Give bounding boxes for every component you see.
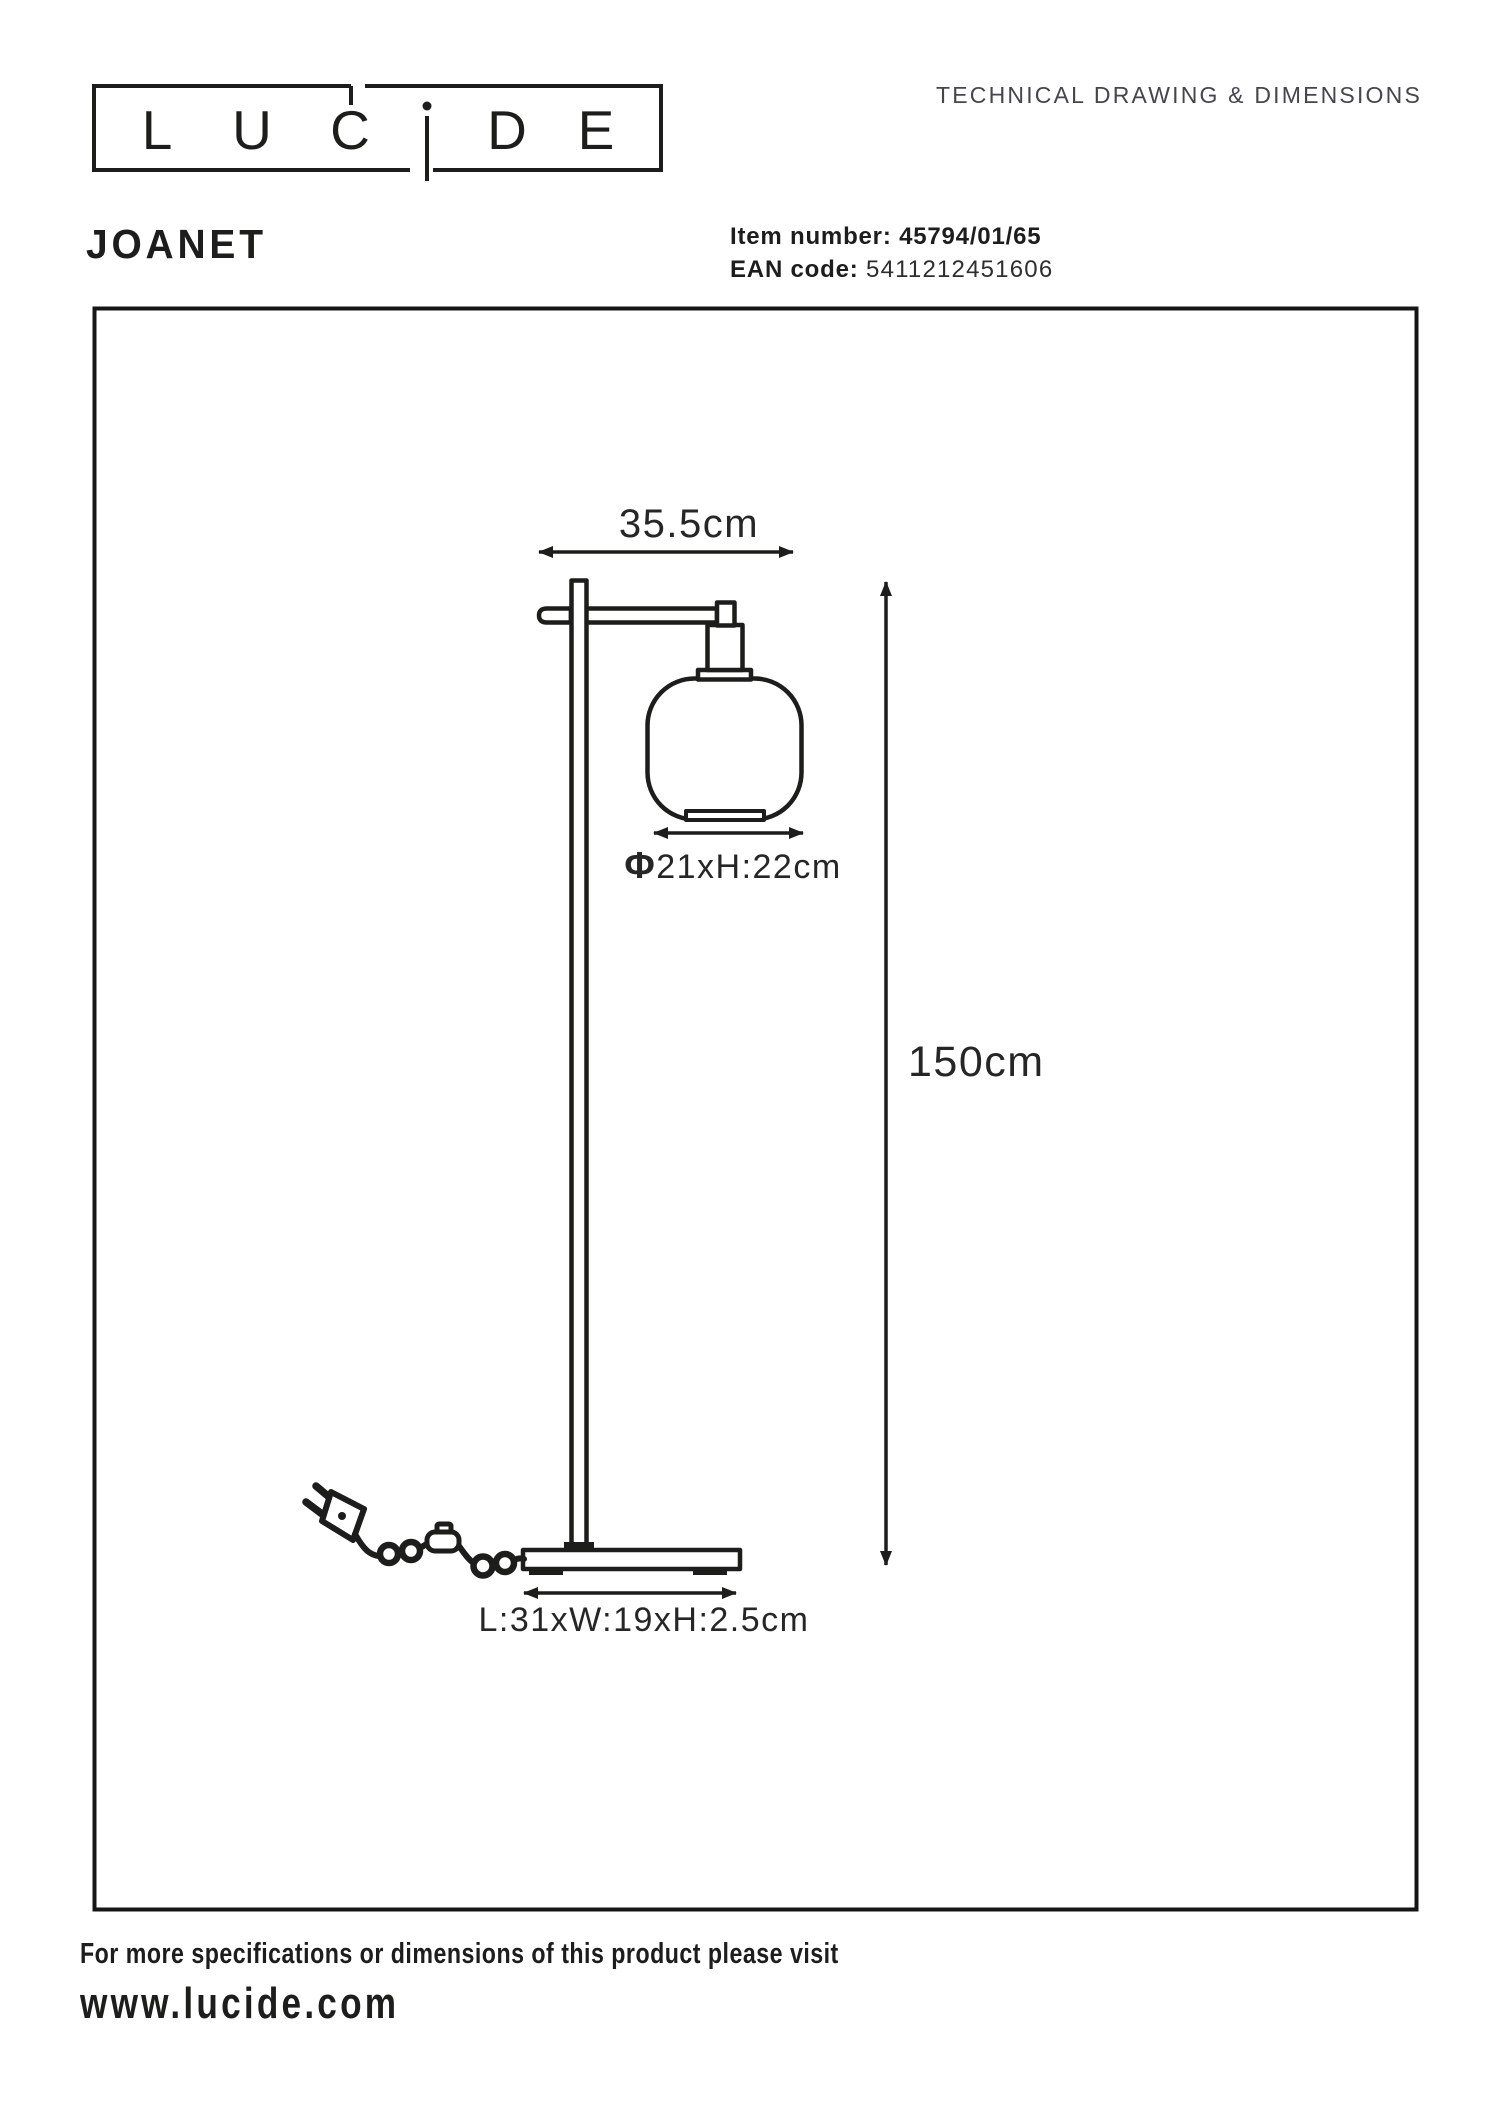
lamp-pole [572,581,587,1551]
cord-loop-4 [496,1554,514,1572]
product-identifiers: Item number: 45794/01/65 EAN code: 54112… [730,220,1053,286]
item-number-value: 45794/01/65 [899,223,1041,250]
footer-website: www.lucide.com [80,1979,839,2029]
footer-note: For more specifications or dimensions of… [80,1938,839,1971]
cord-segment-1 [355,1534,379,1556]
logo-letter-u: U [232,99,272,161]
footer: For more specifications or dimensions of… [80,1938,1028,2029]
technical-drawing: 35.5cm [92,306,1419,1912]
floor-lamp-drawing [523,581,802,1576]
ean-code-label: EAN code: [730,256,859,283]
cord-loop-3 [474,1557,493,1576]
base-foot-right [693,1569,727,1575]
plug-screw [338,1512,346,1520]
base-dimension-label: L:31xW:19xH:2.5cm [478,1601,809,1639]
logo-letter-l: L [142,99,173,161]
shade-diameter-symbol: Φ [624,845,656,886]
product-name: JOANET [86,221,267,268]
lamp-shade [648,679,802,820]
lucide-logo: L U C D E [92,84,663,186]
ean-code-line: EAN code: 5411212451606 [730,253,1053,286]
cord-loop-2 [402,1542,420,1560]
logo-letter-d: D [487,99,527,161]
inline-switch [427,1532,459,1551]
logo-letter-c: C [330,99,370,161]
lamp-base [523,1550,740,1569]
lamp-shade-bottom-lip [686,811,764,820]
item-number-line: Item number: 45794/01/65 [730,220,1053,253]
shade-size-text: 21xH:22cm [656,848,841,886]
cord-segment-4 [514,1558,524,1560]
logo-letter-i-dot [423,102,432,111]
shade-dimension-label: Φ21xH:22cm [624,845,841,886]
height-dimension-label: 150cm [908,1038,1045,1086]
base-foot-left [529,1569,563,1575]
cord-loop-1 [380,1545,398,1563]
technical-sheet: L U C D E TECHNICAL DRAWING & DIMENSIONS… [0,0,1500,2122]
drawing-frame [95,309,1417,1910]
document-type-title: TECHNICAL DRAWING & DIMENSIONS [936,82,1422,109]
lamp-arm-stub [539,609,571,623]
power-cord [306,1486,524,1576]
width-dimension-label: 35.5cm [619,502,759,546]
lamp-socket-stem [717,603,735,626]
lamp-arm [571,609,717,623]
lamp-socket-body [708,625,743,670]
logo-letter-e: E [578,99,615,161]
item-number-label: Item number: [730,223,892,250]
ean-code-value: 5411212451606 [866,256,1053,283]
